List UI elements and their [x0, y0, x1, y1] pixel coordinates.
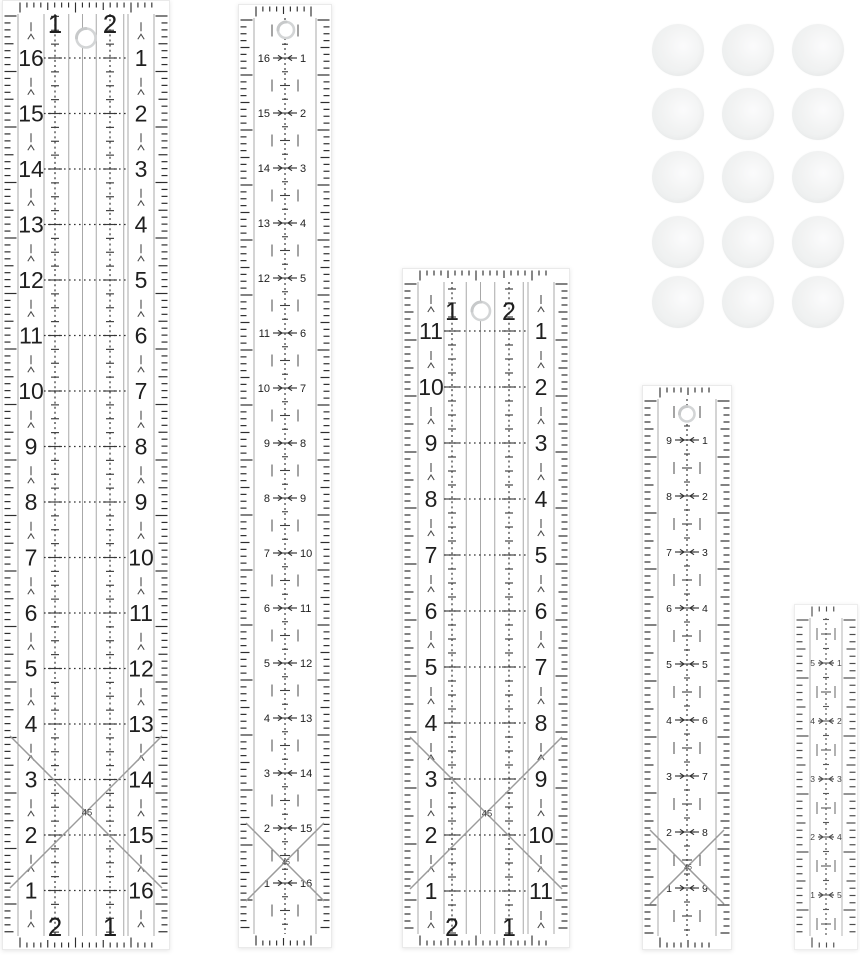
svg-text:11: 11: [129, 600, 153, 626]
svg-text:3: 3: [300, 163, 306, 175]
svg-text:7: 7: [25, 545, 38, 571]
snap-clip-disc-r2-c2: [722, 88, 774, 140]
svg-text:1: 1: [502, 914, 516, 942]
svg-text:8: 8: [425, 486, 438, 512]
svg-text:9: 9: [666, 435, 672, 447]
svg-text:3: 3: [810, 774, 815, 784]
svg-text:1: 1: [300, 53, 306, 65]
svg-text:14: 14: [128, 767, 154, 793]
svg-text:5: 5: [702, 659, 708, 671]
svg-text:7: 7: [535, 654, 548, 680]
svg-text:9: 9: [300, 493, 306, 505]
svg-text:7: 7: [135, 378, 148, 404]
svg-text:3: 3: [666, 771, 672, 783]
svg-text:5: 5: [535, 542, 548, 568]
ruler-5-mini-5: 5142332415: [794, 604, 858, 950]
svg-text:5: 5: [25, 656, 38, 682]
svg-text:4: 4: [810, 716, 815, 726]
svg-text:8: 8: [25, 489, 38, 515]
svg-text:8: 8: [300, 438, 306, 450]
snap-clip-disc-r1-c2: [722, 24, 774, 76]
svg-text:2: 2: [103, 9, 117, 39]
svg-text:8: 8: [666, 491, 672, 503]
svg-text:45: 45: [282, 860, 290, 867]
svg-text:2: 2: [135, 101, 148, 127]
svg-text:11: 11: [19, 323, 43, 349]
snap-clip-disc-r4-c1: [652, 216, 704, 268]
svg-text:13: 13: [300, 713, 312, 725]
svg-text:6: 6: [702, 715, 708, 727]
svg-text:10: 10: [128, 545, 154, 571]
svg-text:16: 16: [18, 45, 44, 71]
svg-text:11: 11: [300, 603, 311, 615]
svg-text:14: 14: [300, 768, 312, 780]
svg-text:6: 6: [425, 598, 438, 624]
svg-text:10: 10: [18, 378, 44, 404]
svg-text:12: 12: [258, 273, 270, 285]
svg-text:2: 2: [810, 832, 815, 842]
svg-text:2: 2: [264, 823, 270, 835]
svg-text:11: 11: [529, 878, 553, 904]
snap-clip-disc-r3-c2: [722, 151, 774, 203]
ruler-2-narrow-16: 1611521431341251161079889710611512413314…: [238, 4, 332, 948]
svg-text:8: 8: [535, 710, 548, 736]
svg-text:4: 4: [837, 832, 842, 842]
svg-text:4: 4: [300, 218, 306, 230]
svg-text:2: 2: [445, 914, 459, 942]
svg-text:9: 9: [535, 766, 548, 792]
svg-text:5: 5: [135, 267, 148, 293]
svg-text:8: 8: [702, 827, 708, 839]
svg-text:3: 3: [425, 766, 438, 792]
svg-text:1: 1: [48, 9, 62, 39]
product-photo-ruler-set: 1611521431341251161079889710611512413314…: [0, 0, 860, 960]
svg-text:11: 11: [419, 318, 443, 344]
svg-text:6: 6: [135, 323, 148, 349]
svg-text:13: 13: [128, 711, 154, 737]
ruler-1-large-grid: 1611521431341251161079889710611512413314…: [2, 0, 170, 950]
snap-clip-disc-r1-c1: [652, 24, 704, 76]
svg-text:1: 1: [702, 435, 708, 447]
svg-text:7: 7: [300, 383, 306, 395]
svg-text:12: 12: [300, 658, 312, 670]
snap-clip-disc-r2-c1: [652, 88, 704, 140]
svg-text:15: 15: [258, 108, 270, 120]
svg-text:1: 1: [445, 298, 459, 326]
svg-text:13: 13: [18, 212, 44, 238]
svg-text:5: 5: [837, 890, 842, 900]
svg-text:2: 2: [535, 374, 548, 400]
svg-text:5: 5: [300, 273, 306, 285]
snap-clip-disc-r5-c2: [722, 276, 774, 328]
svg-text:6: 6: [264, 603, 270, 615]
snap-clip-disc-r3-c3: [792, 151, 844, 203]
svg-text:16: 16: [258, 53, 270, 65]
svg-text:3: 3: [264, 768, 270, 780]
ruler-4-narrow-9: 91827364554637281945: [642, 385, 732, 950]
svg-text:4: 4: [25, 711, 38, 737]
snap-clip-disc-r5-c3: [792, 276, 844, 328]
svg-text:6: 6: [25, 600, 38, 626]
snap-clip-disc-r4-c3: [792, 216, 844, 268]
svg-text:14: 14: [258, 163, 270, 175]
svg-text:2: 2: [837, 716, 842, 726]
svg-text:8: 8: [264, 493, 270, 505]
svg-text:3: 3: [837, 774, 842, 784]
svg-text:9: 9: [135, 489, 148, 515]
svg-text:45: 45: [482, 809, 493, 820]
svg-text:4: 4: [425, 710, 438, 736]
svg-text:1: 1: [837, 658, 842, 668]
snap-clip-disc-r5-c1: [652, 276, 704, 328]
svg-text:9: 9: [425, 430, 438, 456]
svg-text:5: 5: [264, 658, 270, 670]
svg-text:4: 4: [264, 713, 270, 725]
svg-text:10: 10: [528, 822, 554, 848]
snap-clip-disc-r2-c3: [792, 88, 844, 140]
svg-text:3: 3: [25, 767, 38, 793]
svg-text:2: 2: [666, 827, 672, 839]
svg-text:3: 3: [702, 547, 708, 559]
svg-text:11: 11: [259, 328, 270, 340]
svg-text:10: 10: [258, 383, 270, 395]
svg-text:6: 6: [300, 328, 306, 340]
svg-text:2: 2: [502, 298, 516, 326]
svg-text:9: 9: [25, 434, 38, 460]
svg-text:1: 1: [535, 318, 548, 344]
svg-text:4: 4: [535, 486, 548, 512]
svg-text:10: 10: [300, 548, 312, 560]
svg-text:4: 4: [702, 603, 708, 615]
svg-text:15: 15: [300, 823, 312, 835]
snap-clip-disc-r3-c1: [652, 151, 704, 203]
svg-text:12: 12: [18, 267, 44, 293]
snap-clip-disc-r4-c2: [722, 216, 774, 268]
svg-text:3: 3: [535, 430, 548, 456]
svg-text:1: 1: [103, 912, 117, 942]
svg-text:7: 7: [425, 542, 438, 568]
svg-text:5: 5: [810, 658, 815, 668]
svg-text:12: 12: [128, 656, 154, 682]
svg-text:6: 6: [666, 603, 672, 615]
svg-text:6: 6: [535, 598, 548, 624]
svg-text:5: 5: [666, 659, 672, 671]
svg-text:1: 1: [25, 878, 38, 904]
svg-text:5: 5: [425, 654, 438, 680]
svg-text:7: 7: [264, 548, 270, 560]
svg-text:2: 2: [300, 108, 306, 120]
svg-text:2: 2: [25, 822, 38, 848]
svg-text:7: 7: [666, 547, 672, 559]
svg-text:1: 1: [135, 45, 148, 71]
ruler-3-medium-grid: 11110293847566574839210111122145: [402, 268, 570, 948]
svg-text:15: 15: [18, 101, 44, 127]
svg-text:4: 4: [666, 715, 672, 727]
svg-text:9: 9: [264, 438, 270, 450]
svg-text:16: 16: [128, 878, 154, 904]
svg-text:15: 15: [128, 822, 154, 848]
svg-text:1: 1: [425, 878, 438, 904]
svg-text:13: 13: [258, 218, 270, 230]
svg-text:8: 8: [135, 434, 148, 460]
svg-text:45: 45: [684, 865, 692, 872]
svg-text:2: 2: [425, 822, 438, 848]
svg-text:4: 4: [135, 212, 148, 238]
svg-text:10: 10: [418, 374, 444, 400]
svg-text:45: 45: [82, 808, 93, 819]
svg-text:3: 3: [135, 156, 148, 182]
svg-text:2: 2: [48, 912, 62, 942]
svg-text:2: 2: [702, 491, 708, 503]
snap-clip-disc-r1-c3: [792, 24, 844, 76]
svg-text:14: 14: [18, 156, 44, 182]
svg-text:1: 1: [810, 890, 815, 900]
svg-text:7: 7: [702, 771, 708, 783]
